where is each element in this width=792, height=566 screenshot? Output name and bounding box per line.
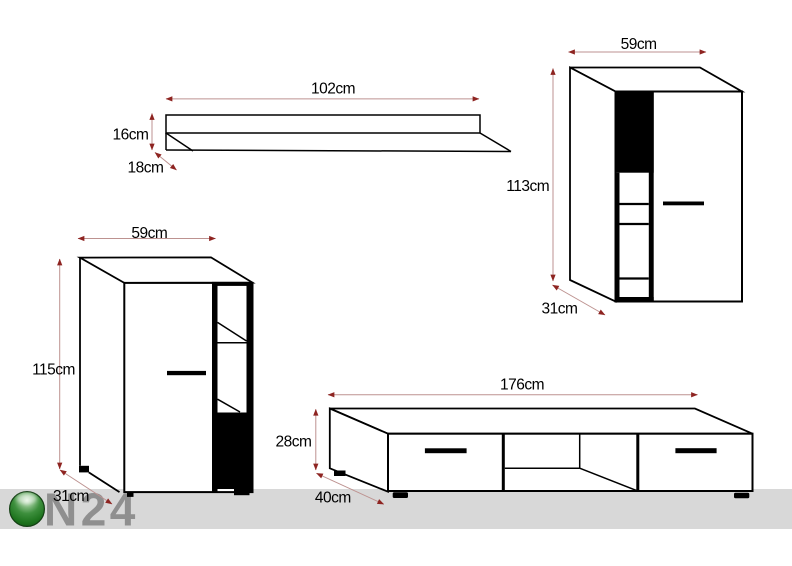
svg-text:59cm: 59cm bbox=[621, 36, 657, 53]
svg-text:102cm: 102cm bbox=[311, 81, 355, 98]
svg-text:31cm: 31cm bbox=[542, 301, 578, 318]
svg-text:31cm: 31cm bbox=[53, 488, 89, 505]
svg-text:18cm: 18cm bbox=[128, 159, 164, 176]
svg-text:40cm: 40cm bbox=[315, 490, 351, 507]
svg-text:28cm: 28cm bbox=[276, 434, 312, 451]
svg-text:115cm: 115cm bbox=[32, 362, 75, 379]
svg-text:113cm: 113cm bbox=[506, 178, 549, 195]
svg-text:16cm: 16cm bbox=[113, 127, 149, 144]
svg-text:176cm: 176cm bbox=[500, 377, 544, 394]
svg-text:59cm: 59cm bbox=[131, 225, 167, 242]
